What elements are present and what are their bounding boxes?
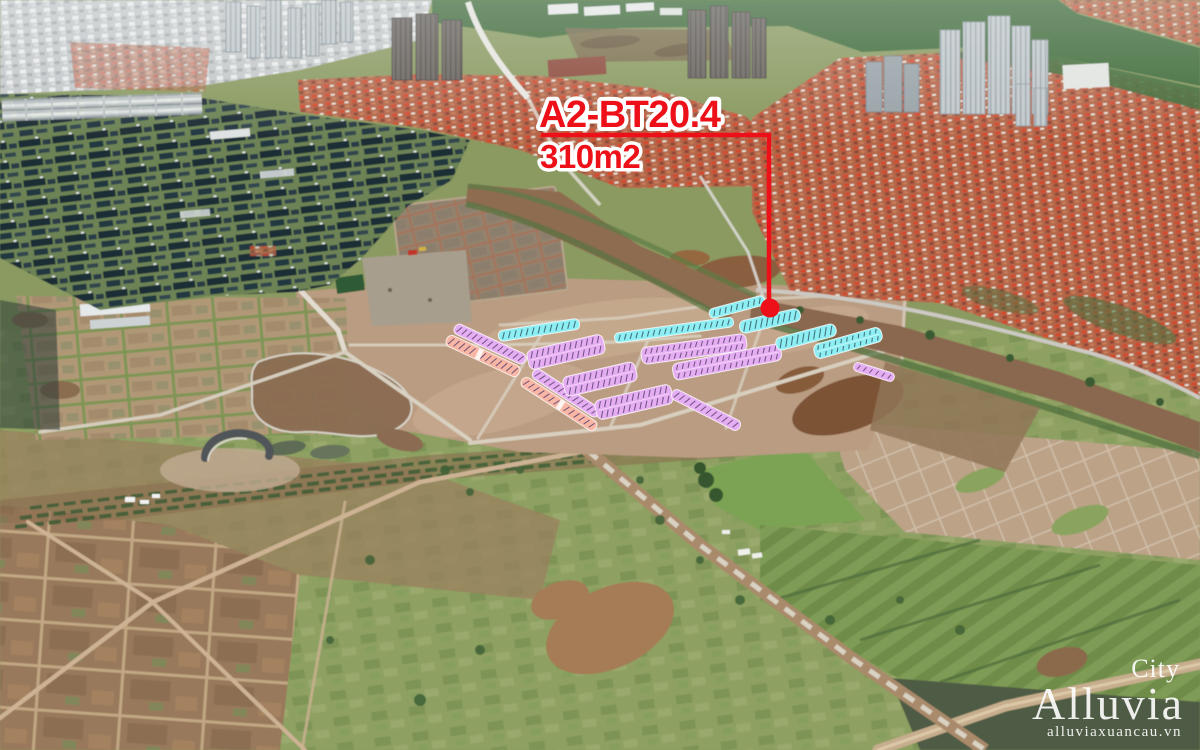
watermark-url: alluviaxuancau.vn	[1047, 724, 1182, 740]
plot-area-label: 310m2	[540, 138, 640, 175]
scene-canvas: A2-BT20.4 310m2 City Alluvia alluviaxuan…	[0, 0, 1200, 750]
callout-dot	[761, 299, 780, 318]
watermark-brand: Alluvia	[1032, 678, 1184, 729]
plot-label: A2-BT20.4	[539, 94, 721, 136]
aerial-photo: A2-BT20.4 310m2 City Alluvia alluviaxuan…	[0, 0, 1200, 750]
